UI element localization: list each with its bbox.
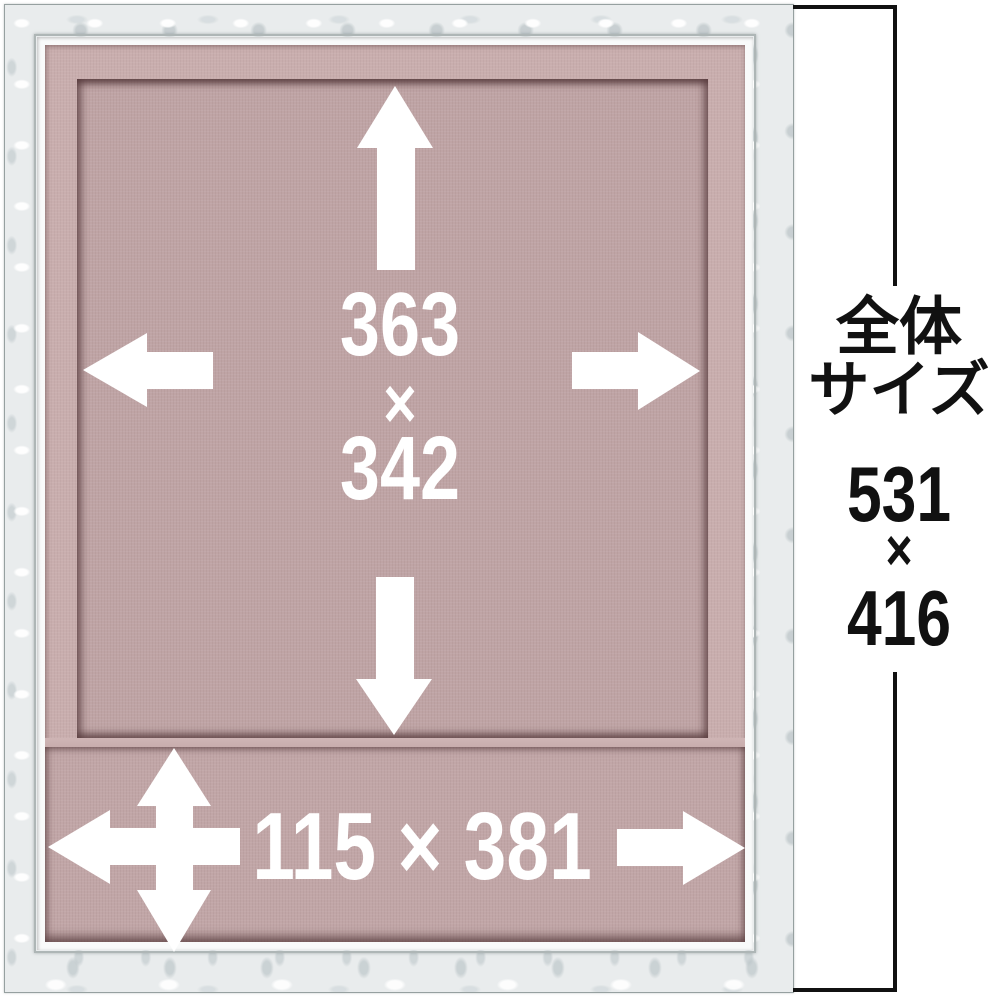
- overall-size-title-line2: サイズ: [808, 360, 989, 421]
- overall-width-label: 416: [847, 579, 951, 657]
- mat-divider-strip: [45, 738, 745, 747]
- product-dimension-photo: 363 × 342 115 × 381 全体 サイズ 531 × 416: [0, 0, 1000, 1000]
- overall-height-label: 531: [847, 455, 951, 533]
- overall-size-title-line1: 全体: [836, 297, 962, 360]
- mat-bottom-section: [45, 747, 745, 942]
- dimension-bracket-top-tick: [793, 5, 895, 9]
- mat-window-opening: [77, 79, 708, 738]
- picture-frame: [4, 4, 794, 993]
- dimension-bracket-bottom-tick: [793, 988, 895, 992]
- mat-board: [45, 45, 745, 942]
- dimension-bracket-line-lower: [893, 672, 897, 992]
- overall-size-separator: ×: [885, 522, 912, 580]
- dimension-bracket-line-upper: [893, 5, 897, 286]
